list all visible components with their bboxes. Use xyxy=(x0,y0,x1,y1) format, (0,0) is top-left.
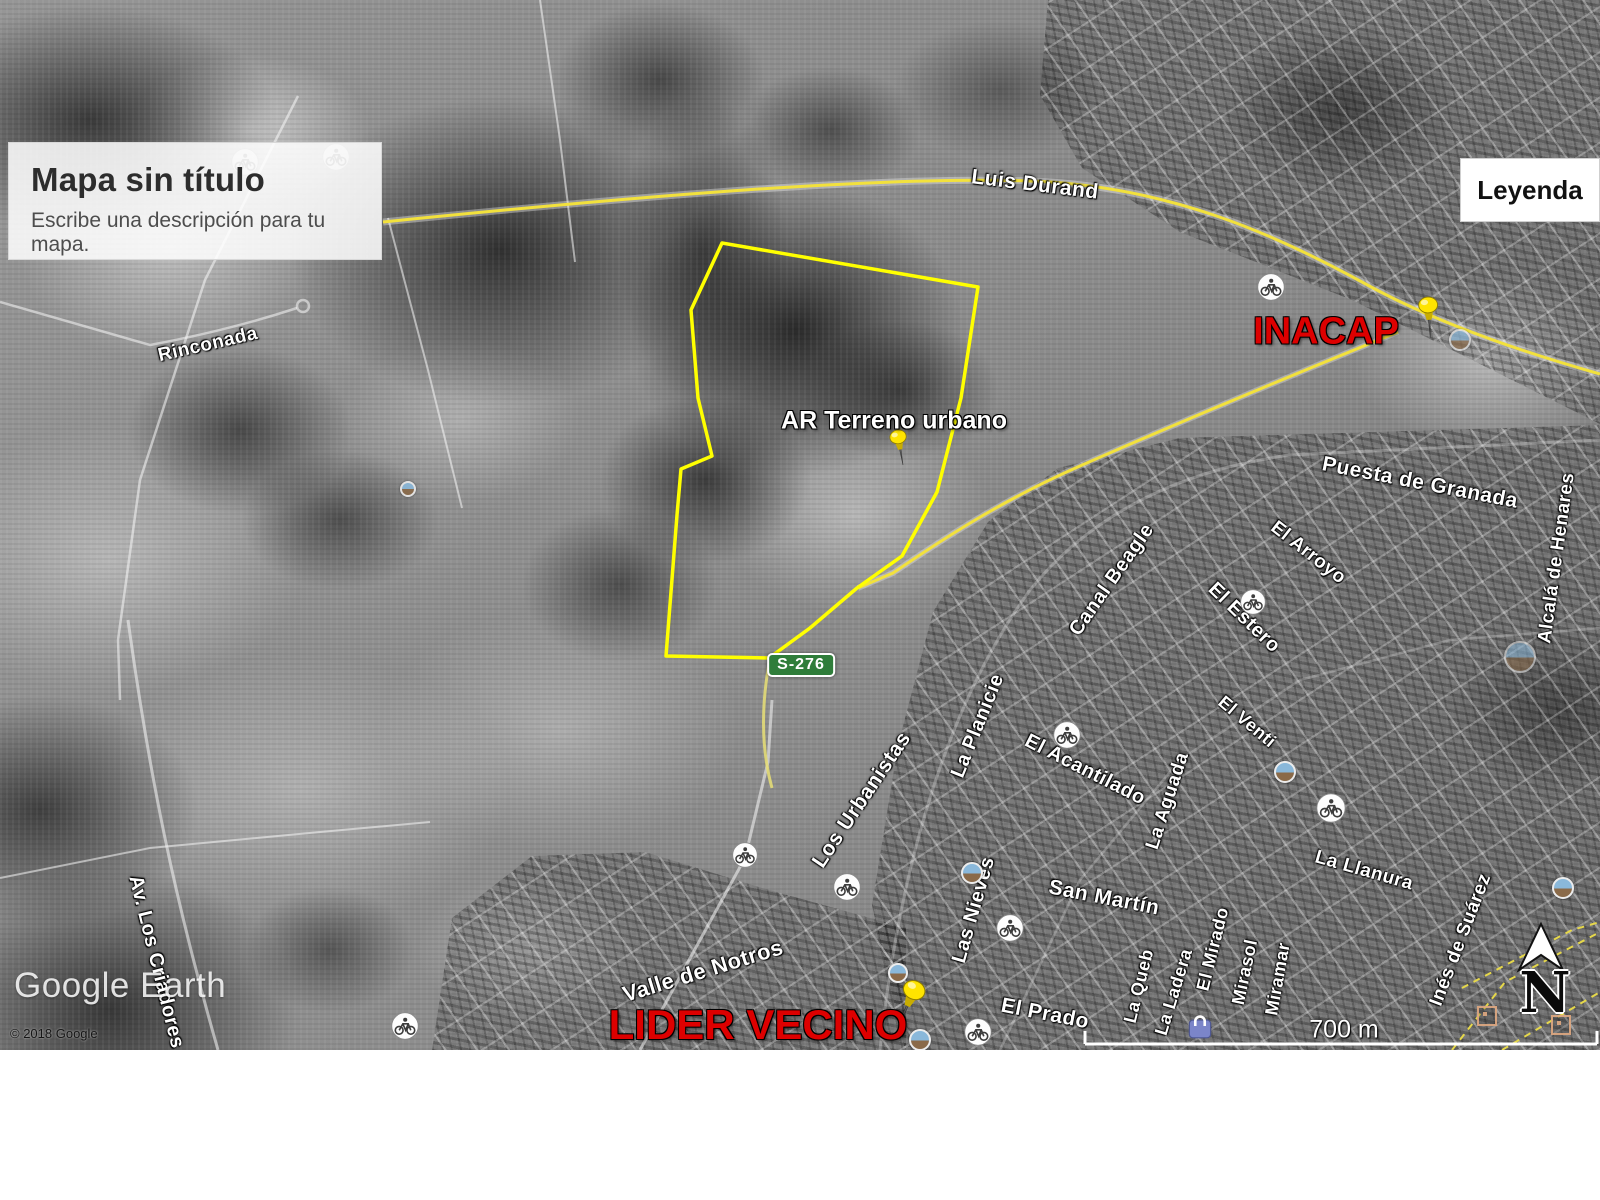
photo-marker-icon[interactable] xyxy=(961,862,983,884)
street-label-el-arroyo: El Arroyo xyxy=(1266,517,1350,589)
north-letter: N xyxy=(1519,960,1570,1026)
street-label-el-venti: El Venti xyxy=(1214,692,1280,752)
map-title-card[interactable]: Mapa sin título Escribe una descripción … xyxy=(8,142,382,260)
street-label-los-urbanistas: Los Urbanistas xyxy=(808,727,917,872)
street-label-el-mirado: El Mirado xyxy=(1192,905,1233,993)
map-title: Mapa sin título xyxy=(31,161,359,199)
street-label-mirasol: Mirasol xyxy=(1228,937,1262,1006)
bike-path-icon[interactable] xyxy=(1316,793,1346,823)
street-label-rinconada: Rinconada xyxy=(156,323,260,367)
legend-button[interactable]: Leyenda xyxy=(1460,158,1600,222)
street-label-valle-de-notros: Valle de Notros xyxy=(620,934,787,1008)
google-earth-watermark: Google Earth xyxy=(14,966,226,1006)
street-label-la-queb: La Queb xyxy=(1120,947,1159,1025)
street-label-alcala-de-henares: Alcalá de Henares xyxy=(1534,471,1580,645)
photo-marker-icon[interactable] xyxy=(1504,641,1536,673)
placemark-label-inacap: INACAP xyxy=(1253,311,1399,354)
bike-path-icon[interactable] xyxy=(732,842,758,868)
legend-label: Leyenda xyxy=(1477,175,1583,206)
street-label-av-los-criadores: Av. Los Criadores xyxy=(123,873,188,1050)
shopping-bag-icon[interactable] xyxy=(1188,1013,1212,1039)
street-label-luis-durand: Luis Durand xyxy=(970,165,1100,204)
street-label-el-acantilado: El Acantilado xyxy=(1021,730,1149,811)
poi-square-icon[interactable] xyxy=(1477,1006,1497,1026)
satellite-map[interactable]: Luis DurandRinconadaAv. Los CriadoresVal… xyxy=(0,0,1600,1050)
map-description-placeholder: Escribe una descripción para tu mapa. xyxy=(31,209,359,257)
bike-path-icon[interactable] xyxy=(1240,589,1266,615)
street-label-la-planicie: La Planicie xyxy=(947,671,1010,782)
road-shield-s276: S-276 xyxy=(767,653,835,677)
google-earth-screenshot: Luis DurandRinconadaAv. Los CriadoresVal… xyxy=(0,0,1600,1200)
copyright-notice: © 2018 Google xyxy=(10,1026,98,1041)
street-label-canal-beagle: Canal Beagle xyxy=(1065,519,1159,640)
street-label-la-llanura: La Llanura xyxy=(1312,846,1415,895)
bike-path-icon[interactable] xyxy=(996,914,1024,942)
bike-path-icon[interactable] xyxy=(964,1018,992,1046)
street-label-puesta-de-granada: Puesta de Granada xyxy=(1320,452,1520,513)
bike-path-icon[interactable] xyxy=(391,1012,419,1040)
photo-marker-icon[interactable] xyxy=(400,481,416,497)
scale-label: 700 m xyxy=(1309,1016,1378,1045)
street-label-el-prado: El Prado xyxy=(999,994,1091,1035)
bike-path-icon[interactable] xyxy=(833,873,861,901)
street-label-miramar: Miramar xyxy=(1261,941,1294,1017)
photo-marker-icon[interactable] xyxy=(1552,877,1574,899)
photo-marker-icon[interactable] xyxy=(1449,329,1471,351)
street-label-la-aguada: La Aguada xyxy=(1142,750,1194,853)
placemark-label-lider-vecino: LIDER VECINO xyxy=(609,1001,908,1049)
bike-path-icon[interactable] xyxy=(1257,273,1285,301)
bike-path-icon[interactable] xyxy=(1053,721,1081,749)
photo-marker-icon[interactable] xyxy=(1274,761,1296,783)
street-label-san-martin: San Martín xyxy=(1047,876,1162,921)
placemark-label-ar-terreno-urbano: AR Terreno urbano xyxy=(781,407,1007,436)
pushpin-inacap[interactable] xyxy=(1412,294,1446,341)
street-label-ines-de-suarez: Inés de Suárez xyxy=(1426,871,1497,1010)
